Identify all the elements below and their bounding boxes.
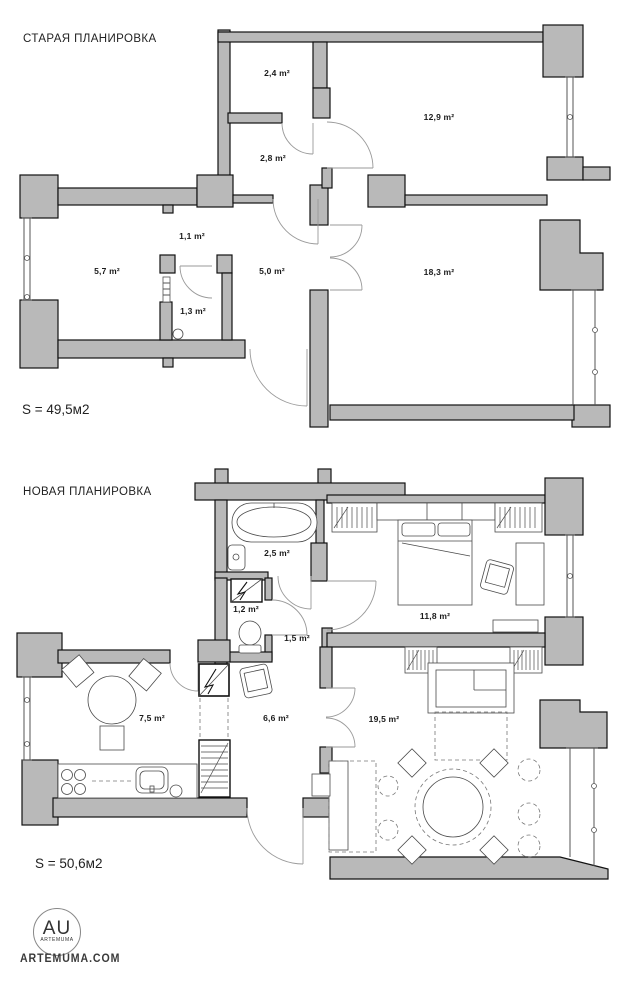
room-label-old-kitchen: 5,7 m² (94, 266, 120, 276)
bathtub-icon (232, 503, 317, 542)
room-label-new-bathroom: 2,5 m² (264, 548, 290, 558)
old-plan-walls (20, 25, 610, 427)
old-plan-title: СТАРАЯ ПЛАНИРОВКА (23, 33, 157, 45)
new-plan-drawing (17, 469, 608, 879)
old-wc-fixture-icon (173, 329, 183, 339)
living-wardrobe-right-icon (510, 647, 542, 673)
old-plan-area: S = 49,5м2 (22, 402, 89, 417)
new-plan-area: S = 50,6м2 (35, 856, 102, 871)
website-text: ARTEMUMA.COM (20, 953, 120, 965)
sofa-icon (428, 663, 514, 713)
radiator-icon (312, 774, 330, 796)
logo-initials: AU (43, 921, 71, 937)
hall-armchair-icon (239, 663, 273, 698)
bath-sink-icon (228, 545, 245, 570)
brand-logo: AU ARTEMUMA (33, 908, 81, 956)
bedroom-wardrobe-right-icon (495, 503, 542, 532)
room-label-old-hall: 2,8 m² (260, 153, 286, 163)
floor-plan-sheet: СТАРАЯ ПЛАНИРОВКА S = 49,5м2 НОВАЯ ПЛАНИ… (0, 0, 628, 990)
room-label-new-kitchen: 7,5 m² (139, 713, 165, 723)
new-plan-title: НОВАЯ ПЛАНИРОВКА (23, 486, 152, 498)
room-label-new-laundry: 1,2 m² (233, 604, 259, 614)
toilet-icon (239, 621, 261, 653)
washing-machine-icon (231, 579, 262, 602)
old-plan-drawing (20, 25, 610, 427)
water-heater-icon (199, 664, 229, 696)
dresser-icon (493, 620, 538, 632)
kitchen-table-icon (62, 655, 162, 750)
room-label-old-bedroom: 12,9 m² (424, 112, 455, 122)
desk-icon (516, 543, 544, 605)
room-label-old-wc: 1,3 m² (180, 306, 206, 316)
room-label-new-living: 19,5 m² (369, 714, 400, 724)
bedroom-wardrobe-left-icon (332, 503, 377, 532)
dining-table-icon (398, 749, 508, 864)
room-label-new-hallway: 6,6 m² (263, 713, 289, 723)
room-label-new-hallway-small: 1,5 m² (284, 633, 310, 643)
bedroom-armchair-icon (480, 559, 515, 595)
room-label-old-corridor: 1,1 m² (179, 231, 205, 241)
old-plan-doors (180, 122, 373, 406)
room-label-old-living: 18,3 m² (424, 267, 455, 277)
kitchen-counter-icon (58, 764, 197, 798)
room-label-old-storage: 2,4 m² (264, 68, 290, 78)
room-label-new-bedroom: 11,8 m² (420, 611, 450, 621)
room-label-old-entry: 5,0 m² (259, 266, 285, 276)
bench-icon (329, 761, 376, 852)
logo-name: ARTEMUMA (40, 937, 73, 943)
shelving-icon (199, 740, 230, 797)
bed-icon (398, 520, 472, 605)
headboard-shelf-icon (377, 503, 495, 520)
